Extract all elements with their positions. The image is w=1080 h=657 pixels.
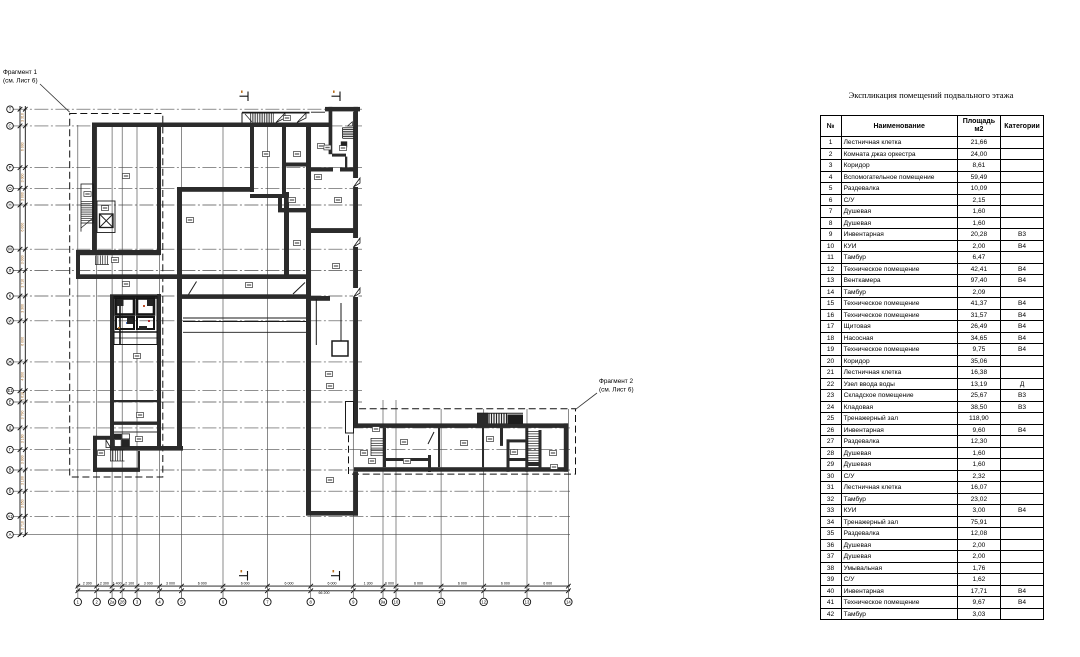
svg-text:11: 11 bbox=[439, 600, 444, 605]
svg-text:Д: Д bbox=[9, 425, 12, 430]
svg-text:3 710: 3 710 bbox=[20, 279, 24, 288]
svg-text:14: 14 bbox=[566, 600, 571, 605]
svg-text:Ж: Ж bbox=[8, 359, 12, 364]
svg-text:3 650: 3 650 bbox=[20, 499, 24, 508]
svg-text:6 000: 6 000 bbox=[458, 582, 467, 586]
svg-text:3 790: 3 790 bbox=[20, 411, 24, 420]
svg-text:13: 13 bbox=[525, 600, 530, 605]
svg-text:6 000: 6 000 bbox=[501, 582, 510, 586]
svg-text:6 000: 6 000 bbox=[543, 582, 552, 586]
svg-text:3 310: 3 310 bbox=[20, 113, 24, 122]
svg-text:10: 10 bbox=[394, 600, 399, 605]
svg-text:12: 12 bbox=[481, 600, 486, 605]
svg-text:3 000: 3 000 bbox=[20, 255, 24, 264]
svg-text:Е: Е bbox=[9, 400, 12, 405]
svg-text:2 300: 2 300 bbox=[100, 582, 109, 586]
svg-text:Б: Б bbox=[9, 489, 12, 494]
svg-text:2 300: 2 300 bbox=[83, 582, 92, 586]
svg-text:Л: Л bbox=[9, 268, 12, 273]
svg-text:2а: 2а bbox=[110, 600, 115, 605]
svg-text:3 000: 3 000 bbox=[20, 192, 24, 201]
svg-text:Н: Н bbox=[8, 203, 11, 208]
svg-text:А: А bbox=[9, 532, 12, 537]
svg-text:Е1: Е1 bbox=[7, 388, 13, 393]
svg-text:М: М bbox=[8, 247, 12, 252]
svg-text:2 710: 2 710 bbox=[20, 521, 24, 530]
svg-text:Т: Т bbox=[9, 107, 12, 112]
svg-text:С: С bbox=[8, 123, 11, 128]
svg-text:4 200: 4 200 bbox=[20, 372, 24, 381]
svg-text:3 000: 3 000 bbox=[20, 455, 24, 464]
svg-text:6 000: 6 000 bbox=[414, 582, 423, 586]
svg-text:Фрагмент 1: Фрагмент 1 bbox=[3, 69, 37, 76]
svg-text:6 000: 6 000 bbox=[241, 582, 250, 586]
svg-text:3 000: 3 000 bbox=[20, 174, 24, 183]
svg-text:3 160: 3 160 bbox=[20, 434, 24, 443]
svg-text:3 300: 3 300 bbox=[20, 304, 24, 313]
svg-text:9а: 9а bbox=[381, 600, 386, 605]
svg-text:6 000: 6 000 bbox=[285, 582, 294, 586]
svg-text:Фрагмент 2: Фрагмент 2 bbox=[599, 378, 633, 385]
svg-text:6 000: 6 000 bbox=[20, 337, 24, 346]
svg-text:6 000: 6 000 bbox=[20, 223, 24, 232]
svg-text:А1: А1 bbox=[7, 514, 13, 519]
svg-text:Р: Р bbox=[9, 165, 12, 170]
svg-text:1 300: 1 300 bbox=[364, 582, 373, 586]
svg-text:3 000: 3 000 bbox=[144, 582, 153, 586]
svg-text:66 200: 66 200 bbox=[319, 591, 330, 595]
svg-text:И: И bbox=[8, 318, 11, 323]
svg-text:(см. Лист 6): (см. Лист 6) bbox=[3, 78, 38, 85]
svg-text:1 610: 1 610 bbox=[20, 392, 24, 401]
svg-text:3 000: 3 000 bbox=[166, 582, 175, 586]
svg-text:3 100: 3 100 bbox=[20, 476, 24, 485]
svg-text:1 400: 1 400 bbox=[113, 582, 122, 586]
svg-text:6 000: 6 000 bbox=[20, 142, 24, 151]
svg-text:6 000: 6 000 bbox=[198, 582, 207, 586]
svg-text:6 000: 6 000 bbox=[328, 582, 337, 586]
svg-text:2 100: 2 100 bbox=[125, 582, 134, 586]
svg-text:В: В bbox=[9, 468, 12, 473]
svg-text:6 000: 6 000 bbox=[385, 582, 394, 586]
svg-text:2б: 2б bbox=[120, 600, 125, 605]
svg-text:(см. Лист 6): (см. Лист 6) bbox=[599, 387, 634, 394]
